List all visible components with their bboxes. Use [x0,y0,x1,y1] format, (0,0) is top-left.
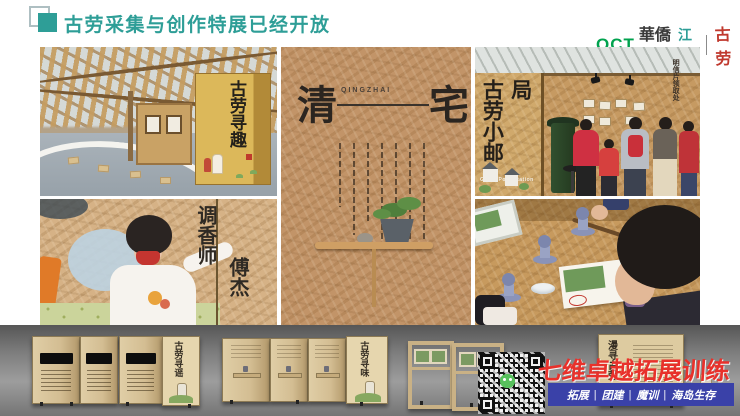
postcard-on-wall [633,102,645,112]
wall-shelf [315,242,433,249]
header-filled-square-icon [38,13,57,32]
qingzhai-left-character: 清 [297,73,337,131]
spotlight-stem [595,73,597,79]
shelf-item [324,366,329,372]
planter-pot [377,219,417,243]
vertical-text-column [395,143,397,231]
training-watermark-text: 七维卓越拓展训练 [537,351,740,386]
mural-bush [519,183,529,190]
wooden-post [128,91,133,161]
illustrated-figure-red [204,158,211,172]
display-card [98,165,109,173]
visitor-torso [679,131,699,173]
cabinet-leg [230,400,233,404]
banner-item-island-survival: 海岛生存 [671,387,715,403]
cabinet-screen [40,353,73,364]
perfumer-name-label: 傅杰 [224,257,249,297]
display-cabinet-shelf [308,338,346,402]
cabinet-leg [420,401,423,405]
skylight-roof [475,47,700,76]
visitor-torso [573,130,599,166]
cabinet-caption-text [127,370,154,394]
grass-tuft [250,170,257,174]
display-cabinet-screen [80,336,118,404]
gulao-seal-logo: 古劳 [714,21,740,70]
stamp-knob [538,235,551,248]
ink-dish [531,283,555,294]
banner-separator: | [629,389,632,401]
plant-leaves [397,197,421,210]
visitor-torso [653,129,677,159]
mural-bush [479,185,491,193]
panel-illustration-grass [355,393,381,402]
sign-panel-ballad: 古劳寻谣 [162,336,200,406]
cabinet-leg [126,402,129,406]
mural-house-roof [504,168,520,175]
mural-tree-shape [40,199,88,219]
display-cabinet-screen [32,336,80,404]
cabinet-shelf [278,373,302,378]
post-station-title: 古劳小邮局 [477,79,534,175]
vertical-text-column [423,143,425,239]
photo-canopy-plaza: 古劳寻趣 [40,47,277,196]
postcard-on-wall [599,117,611,126]
cabinet-screen [86,353,112,364]
banner-item-expansion: 拓展 [567,387,589,403]
visitor-torso [599,148,619,176]
qingzhai-pinyin: QINGZHAI [341,87,391,94]
display-cabinet-shelf [222,338,270,402]
vertical-text-column [339,143,341,207]
exhibit-sign-box: 古劳寻趣 [195,73,271,185]
stamp-knob [576,207,589,220]
vertical-text-column [367,143,369,223]
panel-title: 古劳寻谣 [173,341,183,387]
open-display-frame [408,341,454,409]
cabinet-leg [296,400,299,404]
cabinet-caption-text [41,370,71,394]
photo-perfumer-exhibit: 调香师 傅杰 [40,199,277,325]
illustrated-figure-white [212,154,223,174]
vertical-text-column [353,143,355,235]
photo-qingzhai-wall: 清 QINGZHAI 宅 [281,47,471,325]
boy-hand [591,205,608,220]
red-seal-mark [246,154,252,160]
mural-house [483,169,498,182]
logo-divider [706,35,707,55]
postcard-pickup-sign: 明信片领取处 [671,59,680,103]
visitor-legs [601,176,617,196]
display-cabinet-screen [119,336,163,404]
sweater-print [160,299,170,309]
cabinet-leg [470,403,473,407]
mural-house-roof [482,162,498,169]
cabinet-leg [70,402,73,406]
presentation-slide: 古劳采集与创作特展已经开放 OCT 華僑城 江门 古劳 古劳寻趣 [0,0,740,416]
small-framed-print [430,349,447,364]
child-red-mask [136,251,160,265]
wechat-icon [500,374,515,388]
cabinet-etching [277,345,301,359]
banner-item-training: 魔训 [636,387,658,403]
framed-picture [166,115,182,134]
red-backpack [628,135,643,157]
display-card [130,171,141,179]
slide-title: 古劳采集与创作特展已经开放 [64,10,331,37]
stool-pole [571,171,574,193]
wooden-kiosk [136,103,192,165]
framed-photo-image [475,210,502,232]
qingzhai-right-character: 宅 [429,73,469,131]
display-card [160,177,171,184]
display-cabinet-shelf [270,338,308,402]
services-banner: 拓展 | 团建 | 魔训 | 海岛生存 [548,383,734,406]
cabinet-shelf [316,373,340,378]
postcard-on-wall [583,99,595,108]
framed-picture [145,115,161,134]
panel-illustration-grass [169,395,193,403]
display-card [68,156,80,164]
postcard-on-wall [599,101,611,111]
small-framed-print [459,352,476,367]
cabinet-screen [126,353,156,364]
shelf-item [243,366,248,372]
grass-tuft [236,174,243,178]
visitor-legs [576,166,596,196]
postcard-on-wall [615,99,627,108]
banner-item-teambuilding: 团建 [602,387,624,403]
plant-leaves [373,209,391,219]
red-stamp-imprint [568,294,587,307]
cabinet-leg [40,402,43,406]
frame-crossbar [412,367,450,370]
cabinet-caption-text [87,370,111,392]
postcard-image [563,266,605,293]
perfumer-role-label: 调香师 [192,205,217,265]
banner-separator: | [594,389,597,401]
sign-box-title: 古劳寻趣 [226,80,246,172]
cabinet-shelf [233,373,261,378]
sign-panel-taste: 古劳寻味 [346,336,388,404]
spotlight-stem [629,75,631,81]
shelf-item [286,366,291,372]
cabinet-etching [231,345,261,359]
qr-finder-bottom-left [480,397,495,412]
child-hair [126,215,172,255]
qr-code [478,352,545,414]
photo-stamping-activity [475,199,700,325]
cabinet-leg [360,402,363,406]
cabinet-etching [315,345,339,359]
small-framed-print [414,349,431,364]
title-rule-line [337,104,429,106]
stamp-knob [502,273,515,286]
white-sleeve-cuff [483,307,517,325]
photo-post-station: 古劳小邮局 Gulao Post Station 明信片领取处 [475,47,700,196]
qr-finder-top-left [480,354,495,369]
visitor-legs [624,169,646,196]
framed-photo-corner [475,199,523,246]
visitor-legs [681,173,697,196]
shelf-bracket [372,249,376,307]
banner-separator: | [663,389,666,401]
visitor-skirt [653,159,677,196]
cabinet-leg [188,404,191,408]
mural-house [505,175,518,186]
